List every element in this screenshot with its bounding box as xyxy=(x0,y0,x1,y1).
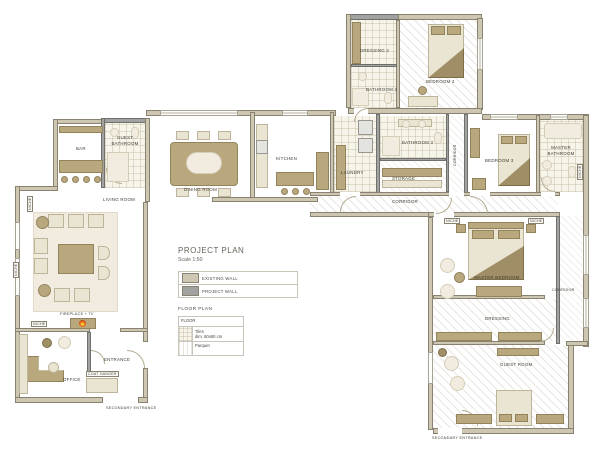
wall xyxy=(398,14,482,20)
page-title: PROJECT PLAN xyxy=(178,246,308,255)
sofa-seat-icon xyxy=(34,238,48,254)
wall xyxy=(433,341,545,345)
tiles-swatch xyxy=(179,327,193,341)
bench-icon xyxy=(86,378,118,393)
armchair-icon xyxy=(98,266,110,280)
wall xyxy=(464,114,468,194)
wall xyxy=(536,115,540,195)
laundry-cabinet-icon xyxy=(336,145,346,190)
window xyxy=(550,114,568,120)
side-table-icon xyxy=(454,272,465,283)
floor-plan-heading: FLOOR PLAN xyxy=(178,307,308,312)
toilet-icon xyxy=(434,132,442,144)
sofa-seat-icon xyxy=(74,288,90,302)
bar-stool-icon xyxy=(72,176,79,183)
project-wall-swatch xyxy=(182,286,199,296)
wall xyxy=(346,14,400,20)
wall xyxy=(351,64,397,67)
pillow-icon xyxy=(431,26,445,35)
room-label-master-bathroom: MASTER BATHROOM xyxy=(546,145,576,156)
console-icon xyxy=(497,348,539,356)
wall xyxy=(428,217,433,430)
dresser-icon xyxy=(470,128,480,158)
pillow-icon xyxy=(472,230,494,239)
wall xyxy=(446,114,449,192)
door-arc xyxy=(91,350,105,364)
room-label-office: OFFICE xyxy=(63,377,81,383)
wall xyxy=(15,397,103,403)
pillow-icon xyxy=(515,136,527,144)
secondary-entrance-label: SECONDARY ENTRANCE xyxy=(432,436,482,441)
wall xyxy=(330,112,334,194)
room-label-laundry: LAUNDRY xyxy=(341,170,364,176)
bench-icon xyxy=(472,178,486,190)
door-opening xyxy=(541,192,555,196)
room-label-dressing: DRESSING xyxy=(485,316,510,322)
kitchen-island-icon xyxy=(276,172,314,186)
wardrobe-icon xyxy=(456,414,492,424)
legend-row-existing-wall: EXISTING WALL xyxy=(179,272,297,285)
washer-icon xyxy=(358,120,373,135)
pillow-icon xyxy=(499,414,512,422)
wall xyxy=(53,119,105,124)
niche-label: NICHE xyxy=(528,218,544,224)
room-label-dining-room: DINING ROOM xyxy=(184,187,217,193)
wall xyxy=(568,345,574,433)
coffee-table-icon xyxy=(58,244,94,274)
sofa-seat-icon xyxy=(68,214,84,228)
window xyxy=(490,114,518,120)
floor-table-header: FLOOR xyxy=(179,317,243,327)
legend-block: PROJECT PLAN Scale 1:50 EXISTING WALL PR… xyxy=(178,246,308,356)
bar-shelf-icon xyxy=(59,126,103,133)
bar-stool-icon xyxy=(83,176,90,183)
fireplace-label: FIREPLACE + TV xyxy=(60,312,94,317)
armchair-icon xyxy=(444,356,459,371)
shower-icon xyxy=(107,152,129,182)
office-chair-icon xyxy=(48,362,59,373)
wall xyxy=(138,397,148,403)
nightstand-icon xyxy=(526,224,536,233)
room-label-master-bedroom: MASTER BEDROOM xyxy=(474,275,520,281)
plant-icon xyxy=(42,338,52,348)
window xyxy=(583,235,589,275)
window xyxy=(160,110,238,116)
niche-label: NICHE xyxy=(13,262,19,278)
sofa-seat-icon xyxy=(88,214,104,228)
wall xyxy=(145,118,150,202)
floor-plan-canvas: DRESSING 2 BATHROOM 2 BEDROOM 2 BAR GUES… xyxy=(0,0,600,460)
room-label-corridor-main: CORRIDOR xyxy=(392,199,418,205)
window xyxy=(282,110,308,116)
sink-icon xyxy=(358,72,367,81)
desk-icon xyxy=(408,96,438,107)
wall xyxy=(143,202,148,342)
chair-icon xyxy=(197,131,210,140)
niche-label: NICHE xyxy=(31,321,47,327)
armchair-icon xyxy=(98,246,110,260)
tall-cabinet-icon xyxy=(316,152,329,190)
room-label-bathroom3: BATHROOM 3 xyxy=(402,140,433,146)
sink-icon xyxy=(542,176,552,186)
wall xyxy=(120,328,148,332)
room-label-guest-bathroom: GUEST BATHROOM xyxy=(111,135,139,146)
dresser-icon xyxy=(476,286,522,297)
bar-stool-icon xyxy=(61,176,68,183)
nightstand-icon xyxy=(456,224,466,233)
room-label-guest-room: GUEST ROOM xyxy=(500,362,532,368)
room-label-bar: BAR xyxy=(76,146,86,152)
room-label-bedroom3: BEDROOM 3 xyxy=(485,158,514,164)
armchair-icon xyxy=(440,284,455,299)
room-label-bedroom2: BEDROOM 2 xyxy=(426,79,455,85)
door-opening xyxy=(340,192,360,196)
wall xyxy=(310,212,435,217)
pouf-icon xyxy=(36,216,49,229)
tiles-cell: Tiles dim. 60x60 cm xyxy=(193,327,224,341)
pillow-icon xyxy=(447,26,461,35)
wall xyxy=(101,118,149,123)
legend-row-project-wall: PROJECT WALL xyxy=(179,285,297,297)
wall xyxy=(250,112,255,198)
chair-icon xyxy=(418,86,427,95)
wall xyxy=(53,119,58,189)
room-label-storage: STORAGE xyxy=(392,176,415,182)
coat-hanger-label: COAT HANGER xyxy=(86,371,119,377)
room-label-corridor-small: CORRIDOR xyxy=(453,144,457,166)
room-label-entrance: ENTRANCE xyxy=(104,357,130,363)
chair-icon xyxy=(176,131,189,140)
wardrobe-icon xyxy=(498,332,542,341)
bar-stool-icon xyxy=(94,176,101,183)
kitchen-counter-icon xyxy=(256,124,268,188)
room-label-bathroom2: BATHROOM 2 xyxy=(366,87,397,93)
headboard-icon xyxy=(468,222,524,229)
pillow-icon xyxy=(498,230,520,239)
sink-icon xyxy=(402,120,410,128)
window xyxy=(477,38,483,70)
wall xyxy=(376,114,380,194)
wardrobe-icon xyxy=(19,334,28,394)
stool-icon xyxy=(292,188,299,195)
floor-table-row-tiles: Tiles dim. 60x60 cm xyxy=(179,327,243,342)
tiles-detail: dim. 60x60 cm xyxy=(195,334,222,339)
corridor-right-floor xyxy=(560,216,583,343)
fire-icon xyxy=(79,320,86,327)
stool-icon xyxy=(281,188,288,195)
room-label-kitchen: KITCHEN xyxy=(276,156,297,162)
stove-icon xyxy=(256,140,268,154)
armchair-icon xyxy=(450,376,465,391)
bar-counter-icon xyxy=(59,160,103,173)
scale-label: Scale 1:50 xyxy=(178,257,308,263)
toilet-icon xyxy=(384,92,392,104)
armchair-icon xyxy=(58,336,71,349)
door-opening xyxy=(438,428,462,434)
existing-wall-swatch xyxy=(182,273,199,283)
niche-label: NICHE xyxy=(577,164,583,180)
pouf-icon xyxy=(38,284,51,297)
platter-icon xyxy=(186,152,222,174)
existing-wall-label: EXISTING WALL xyxy=(202,276,238,281)
sink-icon xyxy=(418,120,426,128)
armchair-icon xyxy=(440,258,455,273)
wall xyxy=(15,186,58,191)
wall xyxy=(346,14,351,108)
window xyxy=(428,352,433,384)
project-wall-label: PROJECT WALL xyxy=(202,289,237,294)
room-label-corridor-right: CORRIDOR xyxy=(552,288,575,293)
chair-icon xyxy=(218,188,231,197)
room-label-living-room: LIVING ROOM xyxy=(103,197,135,203)
niche-label: NICHE xyxy=(27,196,33,212)
dryer-icon xyxy=(358,138,373,153)
wall xyxy=(348,108,482,114)
bathtub-icon xyxy=(544,123,582,139)
parquet-name: Parquet xyxy=(195,343,210,348)
window xyxy=(583,298,589,328)
toilet-icon xyxy=(568,166,576,178)
niche-label: NICHE xyxy=(444,218,460,224)
parquet-swatch xyxy=(179,342,193,355)
floor-table: FLOOR Tiles dim. 60x60 cm Parquet xyxy=(178,316,244,356)
wall xyxy=(212,197,318,202)
parquet-cell: Parquet xyxy=(193,342,212,355)
wall xyxy=(556,216,560,344)
wardrobe-icon xyxy=(436,332,492,341)
pillow-icon xyxy=(501,136,513,144)
door-opening xyxy=(449,192,464,196)
wardrobe-icon xyxy=(352,22,361,64)
chair-icon xyxy=(218,131,231,140)
plant-icon xyxy=(438,348,447,357)
sofa-seat-icon xyxy=(34,258,48,274)
floor-table-row-parquet: Parquet xyxy=(179,342,243,355)
shower-icon xyxy=(382,136,400,156)
window xyxy=(15,222,20,250)
wall-legend-table: EXISTING WALL PROJECT WALL xyxy=(178,271,298,298)
sofa-seat-icon xyxy=(48,214,64,228)
wall xyxy=(380,158,446,161)
room-label-dressing2: DRESSING 2 xyxy=(360,48,389,54)
pillow-icon xyxy=(515,414,528,422)
secondary-entrance-label: SECONDARY ENTRANCE xyxy=(106,406,156,411)
sink-icon xyxy=(542,160,552,170)
wardrobe-icon xyxy=(536,414,564,424)
stool-icon xyxy=(303,188,310,195)
sofa-seat-icon xyxy=(54,288,70,302)
